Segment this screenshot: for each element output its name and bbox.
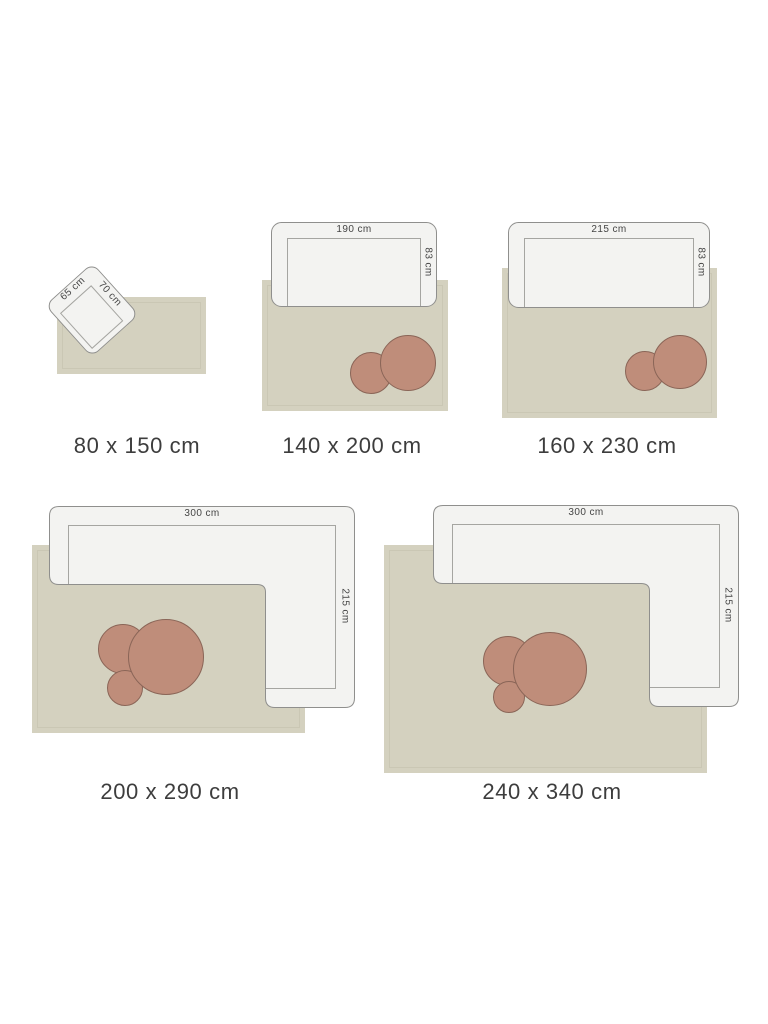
corner-sofa-depth-label-b: 215 cm xyxy=(723,587,734,622)
rug-size-label-80x150: 80 x 150 cm xyxy=(27,433,247,459)
coffee-table-large xyxy=(513,632,587,706)
coffee-table-large xyxy=(380,335,436,391)
corner-sofa-shape-a xyxy=(49,506,355,708)
corner-sofa-depth-label-a: 215 cm xyxy=(340,588,351,623)
corner-sofa-width-label-a: 300 cm xyxy=(49,508,355,519)
rug-size-label-200x290: 200 x 290 cm xyxy=(60,779,280,805)
rug-size-label-240x340: 240 x 340 cm xyxy=(442,779,662,805)
sofa-depth-label-83-b: 83 cm xyxy=(696,247,707,276)
sofa-width-label-190: 190 cm xyxy=(271,224,437,235)
rug-size-label-160x230: 160 x 230 cm xyxy=(497,433,717,459)
rug-size-guide-diagram: 65 cm 70 cm 80 x 150 cm 190 cm 83 cm 140… xyxy=(0,0,768,1024)
sofa-width-label-215: 215 cm xyxy=(508,224,710,235)
coffee-table-large xyxy=(128,619,204,695)
coffee-table-large xyxy=(653,335,707,389)
rug-size-label-140x200: 140 x 200 cm xyxy=(242,433,462,459)
corner-sofa-width-label-b: 300 cm xyxy=(433,507,739,518)
sofa-depth-label-83-a: 83 cm xyxy=(423,247,434,276)
